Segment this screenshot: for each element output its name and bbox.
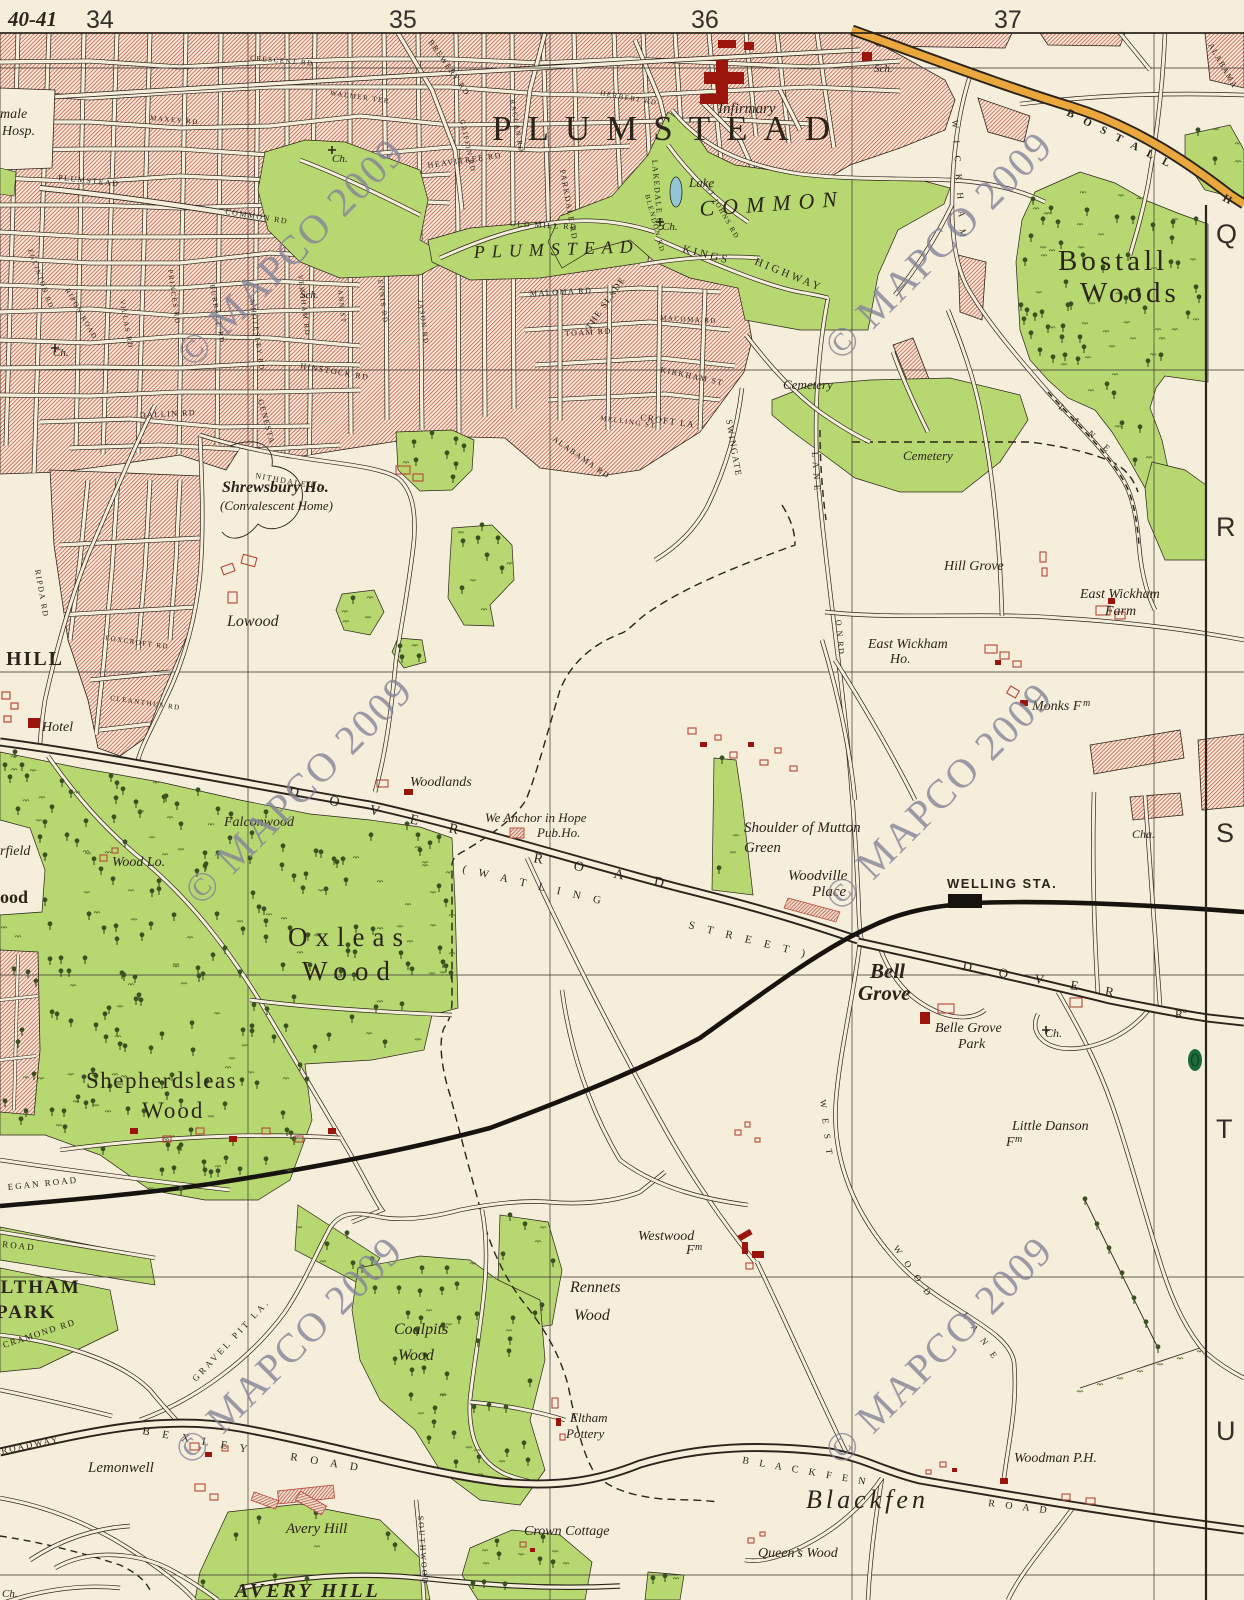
- svg-text:U: U: [1216, 1416, 1236, 1446]
- svg-text:PLUMSTEAD: PLUMSTEAD: [492, 109, 846, 148]
- svg-text:Cha.: Cha.: [1132, 827, 1155, 841]
- svg-text:Ch.: Ch.: [53, 347, 69, 359]
- svg-text:Park: Park: [957, 1037, 986, 1052]
- svg-text:Wood: Wood: [302, 956, 398, 986]
- svg-text:(Convalescent Home): (Convalescent Home): [220, 498, 333, 513]
- svg-text:Green: Green: [744, 840, 781, 856]
- svg-text:Rennets: Rennets: [569, 1279, 621, 1296]
- svg-text:Belle Grove: Belle Grove: [935, 1021, 1002, 1036]
- svg-text:Queen’s Wood: Queen’s Wood: [758, 1546, 839, 1561]
- svg-text:Grove: Grove: [858, 981, 910, 1005]
- svg-text:Westwood: Westwood: [638, 1229, 695, 1244]
- svg-text:Lowood: Lowood: [226, 613, 280, 630]
- svg-text:rfield: rfield: [0, 844, 31, 859]
- svg-text:Woodlands: Woodlands: [410, 775, 472, 790]
- svg-text:HILL: HILL: [6, 648, 64, 670]
- svg-text:East Wickham: East Wickham: [867, 637, 948, 652]
- svg-text:37: 37: [994, 6, 1022, 34]
- svg-text:m: m: [1015, 1134, 1022, 1145]
- svg-text:WELLING STA.: WELLING STA.: [947, 876, 1057, 891]
- svg-text:Sch.: Sch.: [874, 63, 893, 75]
- svg-text:36: 36: [691, 6, 719, 34]
- svg-text:34: 34: [86, 6, 114, 34]
- svg-text:Wood: Wood: [574, 1307, 611, 1324]
- svg-text:40-41: 40-41: [7, 7, 57, 31]
- svg-text:Bell: Bell: [869, 959, 905, 983]
- svg-text:male: male: [0, 107, 27, 122]
- svg-text:East Wickham: East Wickham: [1079, 587, 1160, 602]
- svg-text:Lemonwell: Lemonwell: [87, 1460, 154, 1476]
- svg-text:Avery Hill: Avery Hill: [285, 1521, 347, 1537]
- svg-text:S: S: [1216, 818, 1234, 848]
- svg-text:Ho.: Ho.: [889, 652, 911, 667]
- svg-text:Farm: Farm: [1104, 604, 1136, 619]
- svg-text:T: T: [1216, 1114, 1233, 1144]
- svg-text:ELTHAM: ELTHAM: [0, 1277, 81, 1298]
- svg-text:Eltham: Eltham: [569, 1410, 608, 1425]
- svg-text:We Anchor in Hope: We Anchor in Hope: [485, 810, 587, 825]
- svg-text:Ch.: Ch.: [1045, 1026, 1062, 1040]
- svg-text:Shepherdsleas: Shepherdsleas: [86, 1068, 237, 1093]
- svg-text:Rº: Rº: [1175, 1007, 1187, 1021]
- svg-text:Wood Lo.: Wood Lo.: [112, 855, 165, 870]
- svg-text:Little Danson: Little Danson: [1011, 1119, 1089, 1134]
- svg-text:Cemetery: Cemetery: [903, 448, 953, 463]
- svg-text:Pottery: Pottery: [565, 1426, 604, 1441]
- svg-text:Wood: Wood: [142, 1098, 204, 1123]
- svg-text:Bostall: Bostall: [1058, 245, 1168, 277]
- svg-text:F: F: [1005, 1135, 1015, 1150]
- svg-text:Blackfen: Blackfen: [806, 1485, 929, 1514]
- svg-text:Oxleas: Oxleas: [288, 922, 411, 952]
- svg-text:Wood: Wood: [398, 1347, 435, 1364]
- svg-text:PARK: PARK: [0, 1302, 56, 1323]
- svg-text:Infirmary: Infirmary: [717, 101, 776, 117]
- svg-text:35: 35: [389, 6, 417, 34]
- svg-text:Hotel: Hotel: [41, 720, 73, 735]
- svg-text:Ch.: Ch.: [2, 1588, 18, 1600]
- svg-text:Crown Cottage: Crown Cottage: [524, 1524, 609, 1539]
- svg-text:m: m: [695, 1242, 702, 1253]
- svg-text:Woodman P.H.: Woodman P.H.: [1014, 1451, 1097, 1466]
- svg-text:m: m: [1083, 698, 1090, 709]
- svg-text:Woods: Woods: [1080, 277, 1180, 309]
- svg-text:Cemetery: Cemetery: [783, 377, 833, 392]
- svg-text:AVERY HILL: AVERY HILL: [233, 1580, 381, 1600]
- svg-text:Q: Q: [1216, 219, 1237, 249]
- svg-text:Hill Grove: Hill Grove: [943, 559, 1004, 574]
- svg-text:F: F: [685, 1243, 695, 1258]
- svg-text:Shoulder of Mutton: Shoulder of Mutton: [744, 820, 861, 836]
- svg-text:R: R: [1216, 512, 1236, 542]
- svg-text:Pub.Ho.: Pub.Ho.: [536, 825, 580, 840]
- svg-text:Hosp.: Hosp.: [1, 124, 35, 139]
- svg-text:ood: ood: [0, 887, 28, 907]
- svg-text:Coalpits: Coalpits: [394, 1321, 448, 1338]
